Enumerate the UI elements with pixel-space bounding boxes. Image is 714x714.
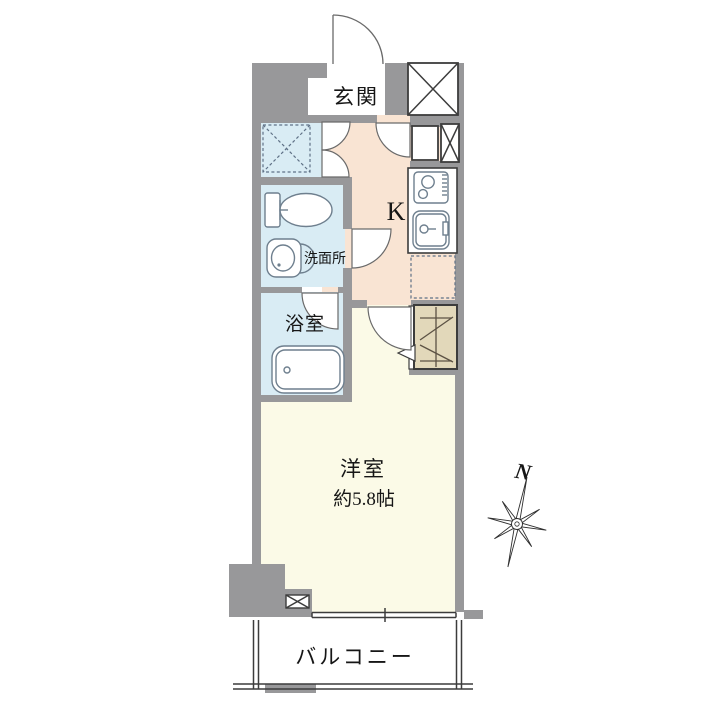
compass-rose-icon: N: [488, 458, 547, 567]
meter-box: [412, 126, 438, 160]
floor-plan-page: N 玄関 K 洗面所 浴室 洋室 約5.8帖 バルコニー: [0, 0, 714, 714]
pillar-shaft-box: [286, 595, 309, 608]
living-room-label: 洋室: [340, 457, 386, 481]
living-room-size-label: 約5.8帖: [333, 488, 395, 510]
compass-north-label: N: [512, 458, 534, 486]
stove-icon: [414, 172, 448, 203]
washroom-label: 洗面所: [304, 251, 346, 267]
bathroom-label: 浴室: [285, 313, 325, 335]
kitchen-sink-icon: [413, 211, 449, 249]
floor-plan-drawing: N 玄関 K 洗面所 浴室 洋室 約5.8帖 バルコニー: [0, 0, 714, 714]
bathtub-icon: [272, 346, 344, 393]
entrance-label: 玄関: [333, 85, 379, 109]
toilet-icon: [265, 193, 332, 227]
pipe-shaft-box: [408, 63, 458, 115]
laundry-space-floor: [261, 117, 322, 177]
kitchen-label: K: [387, 197, 406, 226]
shaft-box-small: [441, 124, 459, 162]
balcony-label: バルコニー: [295, 645, 415, 669]
front-door: [333, 15, 383, 64]
